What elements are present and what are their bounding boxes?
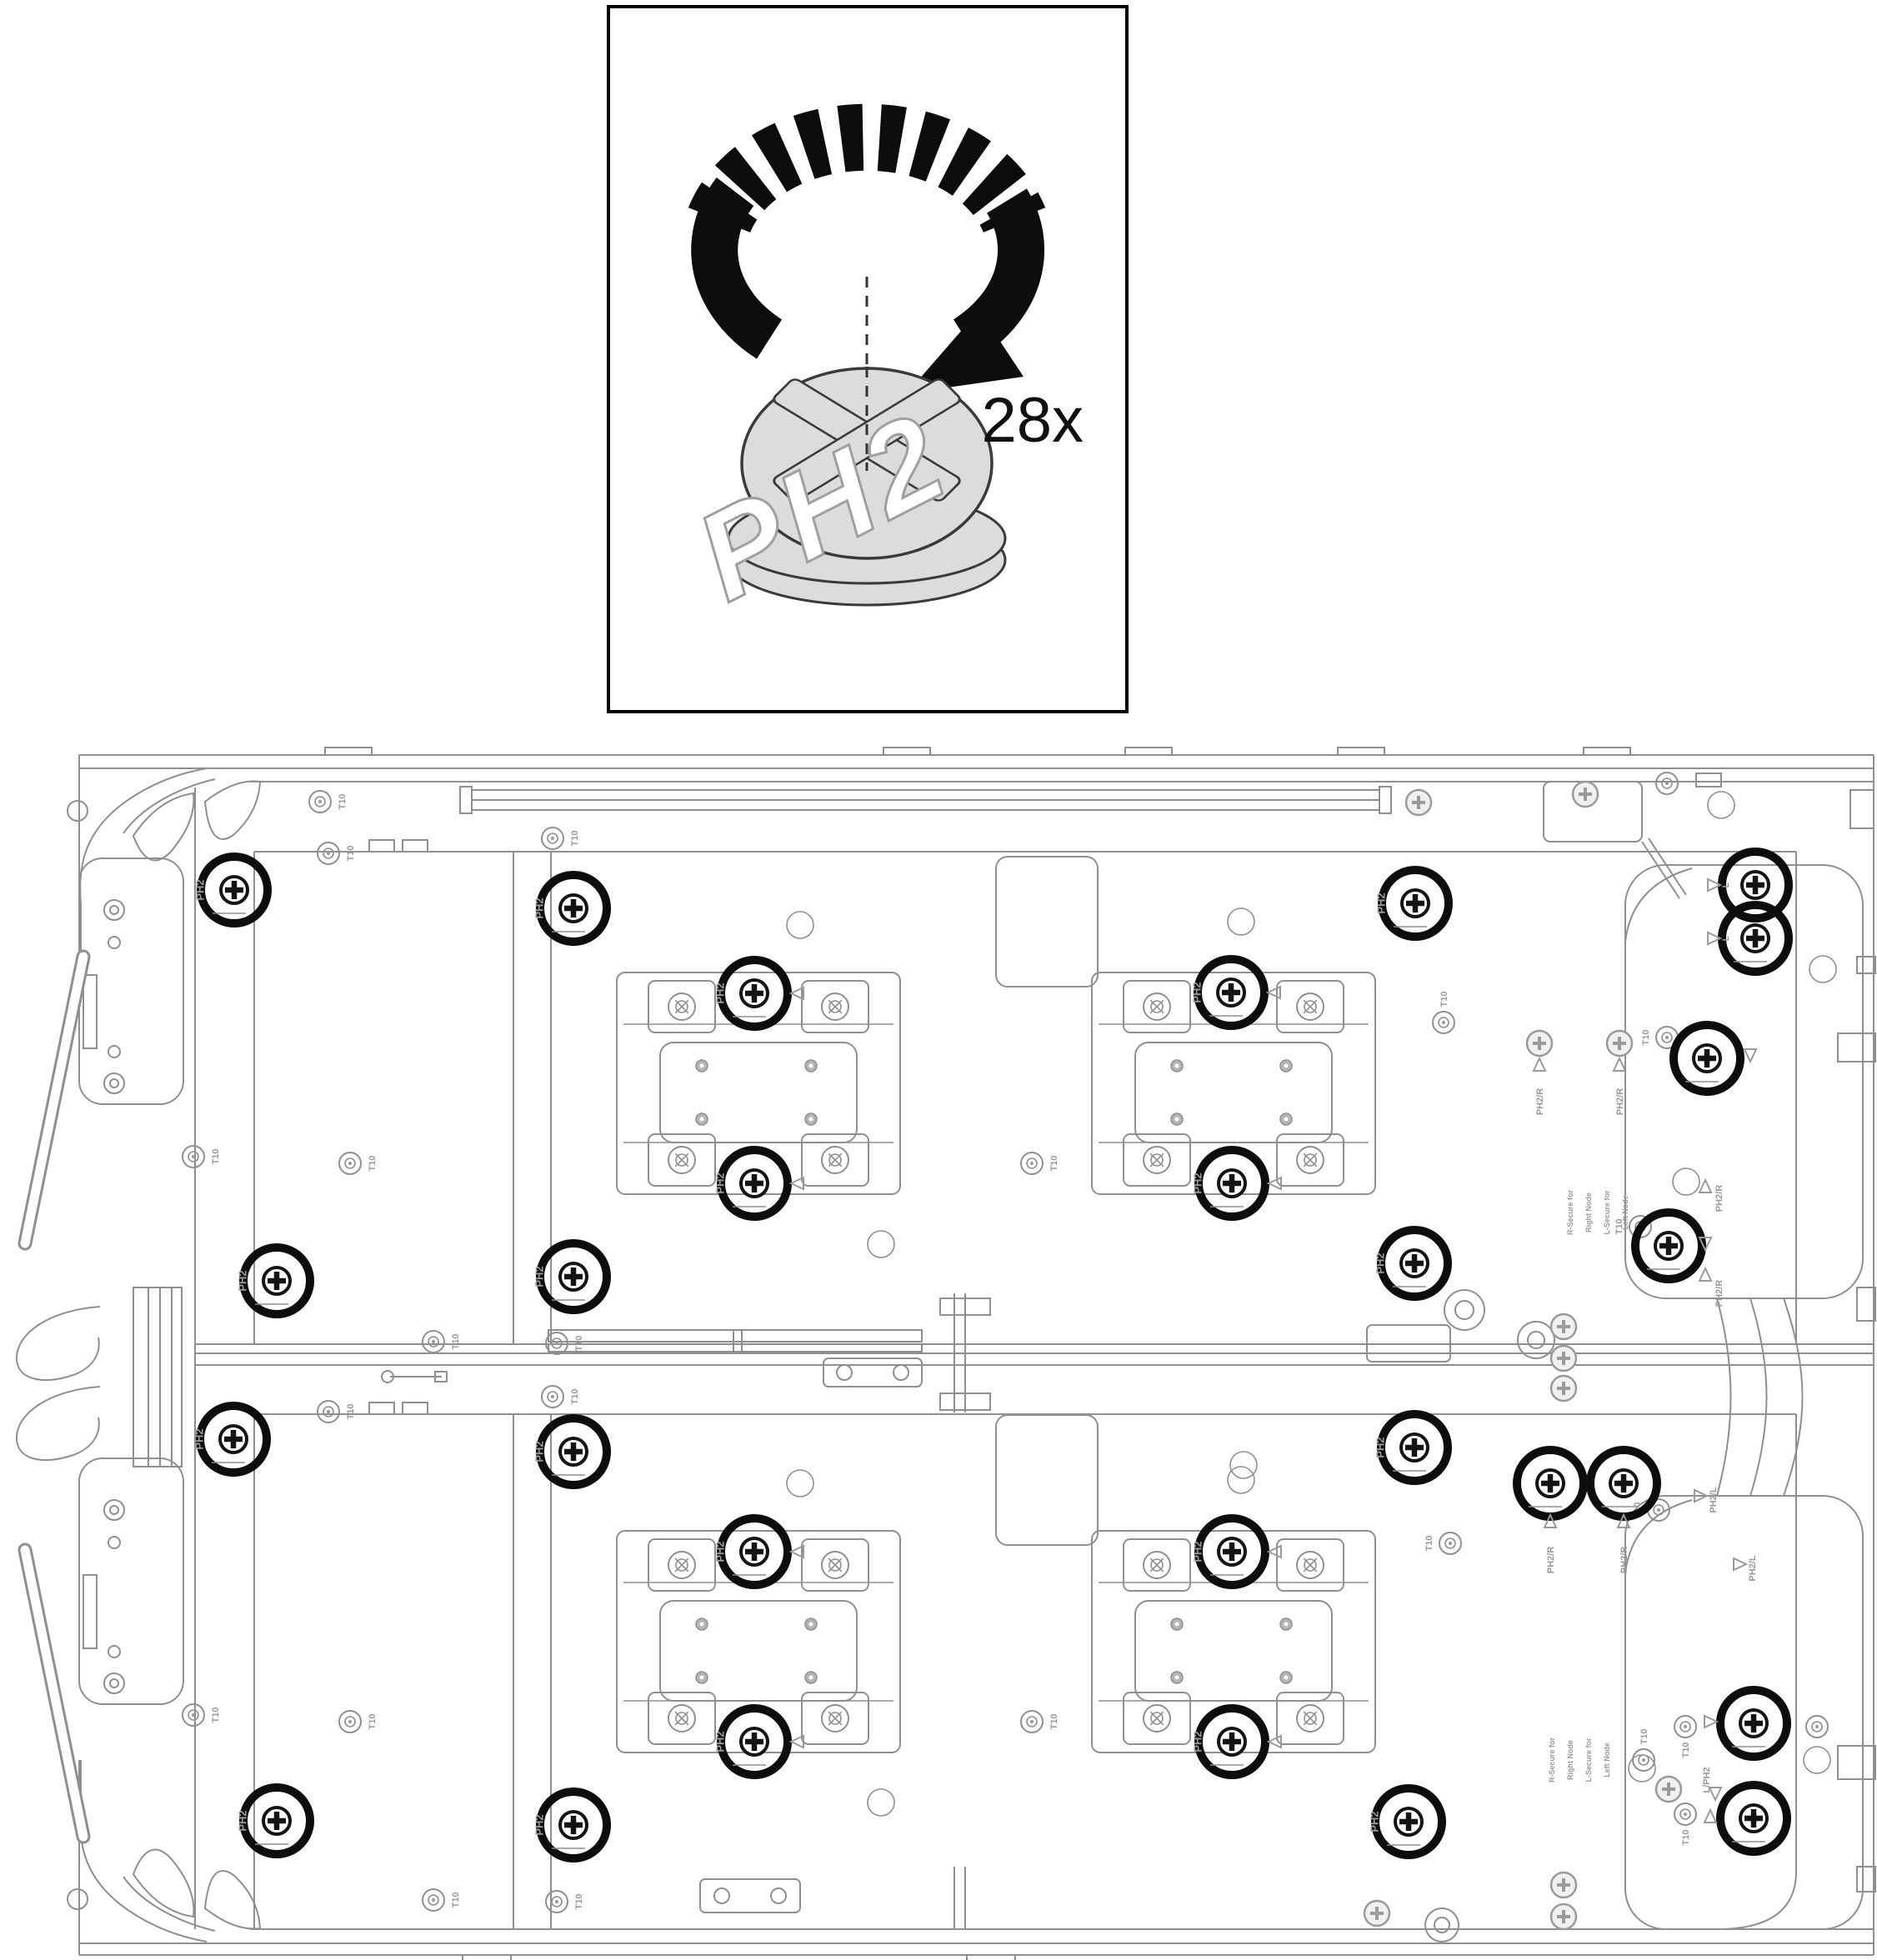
t10-label: T10: [1439, 992, 1449, 1007]
ph2-screw-label: PH2: [1192, 1541, 1204, 1562]
cold-plate: [1135, 1042, 1332, 1142]
annotation-label: L-Secure for: [1584, 1737, 1593, 1782]
hole: [1673, 1168, 1699, 1195]
annotation-label: Right Node: [1566, 1740, 1574, 1780]
ph2-screw-marker: PH2: [237, 1247, 310, 1314]
annotation-label: L: [1721, 935, 1731, 941]
phillips-screw-small: [1406, 790, 1431, 815]
phillips-screw-small: [1573, 782, 1598, 807]
annotation-label: PH2/R: [1619, 1547, 1629, 1573]
t10-label: T10: [1641, 1030, 1651, 1046]
ph2-screw-label: PH2: [193, 1428, 206, 1449]
t10-screw: T10: [309, 791, 348, 812]
annotation-label: PH2/R: [1535, 1088, 1545, 1115]
ph2-screw-label: PH2: [237, 1810, 249, 1831]
pointer-triangle-icon: [1614, 1058, 1625, 1071]
annotation-label: Left Node: [1603, 1742, 1611, 1777]
t10-label: T10: [1424, 1536, 1434, 1552]
screwdriver-inset: 28x PH2: [608, 7, 1127, 712]
ph2-screw-marker: PH2: [1191, 959, 1264, 1026]
t10-label: T10: [574, 1894, 584, 1910]
ph2-screw-marker: PH2: [1192, 1708, 1265, 1775]
ph2-screw-marker: PH2: [533, 875, 607, 942]
latch-lower-left: [68, 1760, 260, 1942]
t10-screw: T10: [1424, 1532, 1461, 1554]
pointer-triangle-icon: [1699, 1180, 1711, 1192]
ph2-screw-marker: [1517, 1450, 1584, 1517]
t10-screw: T10: [1021, 1711, 1059, 1732]
t10-label: T10: [346, 1404, 356, 1420]
t10-label: T10: [1049, 1714, 1059, 1730]
ph2-screw-label: PH2: [533, 1814, 546, 1835]
phillips-screw-small: [1656, 1777, 1681, 1802]
top-right-bracket: [1544, 773, 1721, 898]
hole: [868, 1789, 894, 1816]
ph2-screw-marker: PH2: [1192, 1518, 1265, 1585]
ph2-screw-label: PH2: [237, 1270, 249, 1291]
pointer-triangle-icon: [1704, 1716, 1717, 1727]
phillips-screw-small: [1551, 1904, 1576, 1929]
ph2-screw-label: PH2: [714, 1541, 727, 1562]
t10-label: T10: [338, 794, 348, 810]
phillips-screw-small: [1551, 1346, 1576, 1371]
hole: [1708, 792, 1734, 818]
ph2-screw-marker: [1720, 1690, 1787, 1757]
ph2-screw-label: PH2: [1369, 1811, 1381, 1832]
ph2-screw-marker: [1635, 1212, 1702, 1279]
annotation-label: Left Node: [1621, 1195, 1629, 1230]
t10-screw: T10: [183, 1704, 221, 1726]
ph2-screw-marker: PH2: [714, 1518, 788, 1585]
ph2-screw-label: PH2: [1192, 1172, 1204, 1193]
t10-label: T10: [211, 1707, 221, 1723]
pointer-triangle-icon: [1699, 1268, 1711, 1281]
t10-label: T10: [1049, 1156, 1059, 1172]
ph2-screw-marker: PH2: [1369, 1788, 1442, 1855]
annotation-label: L-Secure for: [1603, 1190, 1611, 1235]
hole: [1804, 1747, 1830, 1773]
ph2-screw-marker: PH2: [714, 1150, 788, 1217]
ph2-screw-label: PH2: [1374, 1252, 1387, 1273]
t10-label: T10: [346, 846, 356, 862]
phillips-screw-small: [1607, 1031, 1632, 1056]
annotation-label: L: [1721, 882, 1731, 887]
hole: [787, 912, 813, 938]
phillips-screw-small: [1551, 1376, 1576, 1401]
hole: [1228, 908, 1254, 935]
ph2-screw-label: PH2: [533, 897, 546, 918]
chassis-hooks-left: [17, 1287, 182, 1467]
t10-label: T10: [1681, 1830, 1691, 1846]
documentation-page: 28x PH2: [0, 0, 1877, 1960]
screw-count-label: 28x: [981, 385, 1084, 456]
t10-label: T10: [574, 1336, 584, 1352]
left-bracket-upper: [79, 858, 183, 1104]
phillips-screw-small: [1527, 1031, 1552, 1056]
phillips-screw-small: [1364, 1901, 1389, 1926]
ph2-screw-marker: PH2: [533, 1418, 607, 1485]
ph2-screw-marker: PH2: [237, 1787, 310, 1854]
t10-label: T10: [368, 1156, 378, 1172]
hole: [1809, 956, 1836, 982]
hole: [868, 1231, 894, 1257]
pointer-triangle-icon: [1734, 1558, 1746, 1570]
t10-screw: T10: [183, 1146, 221, 1167]
ph2-screw-label: PH2: [533, 1266, 546, 1287]
cold-plate: [1135, 1601, 1332, 1701]
pointer-triangle-icon: [791, 1736, 803, 1747]
cold-plate: [660, 1601, 857, 1701]
t10-label: T10: [570, 831, 580, 847]
ph2-screw-marker: PH2: [714, 1708, 788, 1775]
annotation-label: PH2/R: [1615, 1088, 1625, 1115]
ph2-screw-marker: PH2: [194, 857, 268, 923]
phillips-screw-small: [1551, 1314, 1576, 1339]
ph2-screw-marker: PH2: [1374, 1414, 1448, 1481]
t10-label: T10: [1681, 1742, 1691, 1758]
ph2-screw-label: PH2: [1375, 892, 1388, 913]
t10-screw: T10: [339, 1152, 378, 1174]
annotation-label: PH2/R: [1546, 1547, 1556, 1573]
t10-screw: T10: [1021, 1152, 1059, 1174]
t10-screw: T10: [423, 1331, 461, 1352]
phillips-screw-small: [1551, 1872, 1576, 1897]
ph2-screw-marker: PH2: [1374, 1230, 1448, 1297]
ph2-screw-label: PH2: [714, 982, 727, 1003]
release-lever-lower: [25, 1550, 83, 1837]
hole: [1230, 1452, 1257, 1478]
ph2-screw-marker: [1590, 1450, 1657, 1517]
annotation-label: PH2/L: [1748, 1555, 1758, 1581]
annotation-label: PH2/R: [1714, 1280, 1724, 1307]
t10-screw: T10: [542, 1386, 580, 1407]
pointer-triangle-icon: [1269, 1546, 1281, 1557]
ph2-screw-marker: PH2: [533, 1243, 607, 1310]
t10-label: T10: [1639, 1729, 1649, 1745]
annotation-label: Right Node: [1584, 1192, 1593, 1232]
t10-screw: T10: [318, 1401, 356, 1422]
ph2-screw-marker: PH2: [533, 1792, 607, 1858]
water-hoses: [1717, 1298, 1803, 1496]
cold-plate: [660, 1042, 857, 1142]
annotation-label: R-Secure for: [1548, 1737, 1556, 1782]
ph2-screw-label: PH2: [1191, 982, 1204, 1002]
annotation-label: PH2/L: [1709, 1487, 1719, 1512]
pointer-triangle-icon: [791, 1177, 803, 1189]
bottom-center-assembly: [700, 1867, 1459, 1942]
t10-screw: T10: [318, 842, 356, 864]
t10-screw: [1806, 1716, 1828, 1737]
ph2-screw-marker: PH2: [193, 1406, 267, 1472]
t10-label: T10: [451, 1334, 461, 1350]
pointer-triangle-icon: [1534, 1058, 1545, 1071]
ph2-screw-label: PH2: [194, 879, 207, 900]
hole: [787, 1470, 813, 1497]
t10-screw: T10: [423, 1889, 461, 1911]
t10-label: T10: [211, 1149, 221, 1165]
annotation-label: PH2/R: [1714, 1185, 1724, 1212]
ph2-screw-label: PH2: [714, 1731, 727, 1752]
ph2-screw-label: PH2: [533, 1441, 546, 1462]
ph2-screw-label: PH2: [714, 1172, 727, 1193]
tray-structure: [17, 747, 1875, 1960]
water-loop-screw-diagram: 28x PH2: [0, 0, 1877, 1960]
pointer-triangle-icon: [1268, 987, 1280, 998]
t10-screw: T10: [1674, 1803, 1696, 1845]
t10-screw: T10: [1674, 1716, 1696, 1757]
t10-screw: [1656, 772, 1678, 794]
t10-screw: T10: [1433, 992, 1454, 1033]
pointer-triangle-icon: [1744, 1049, 1756, 1062]
release-lever-upper: [25, 957, 83, 1243]
ph2-screw-label: PH2: [1374, 1437, 1387, 1457]
ph2-screw-marker: [1674, 1025, 1740, 1092]
ph2-screw-marker: PH2: [1375, 870, 1449, 937]
pointer-triangle-icon: [1704, 1810, 1716, 1822]
ph2-screw-label: PH2: [1192, 1731, 1204, 1752]
ph2-screw-marker: PH2: [714, 960, 788, 1027]
ph2-screw-marker: PH2: [1192, 1150, 1265, 1217]
annotation-label: R-Secure for: [1566, 1189, 1574, 1235]
t10-label: T10: [570, 1389, 580, 1405]
t10-screw: T10: [542, 827, 580, 849]
t10-screw: T10: [339, 1711, 378, 1732]
left-bracket-lower: [79, 1458, 183, 1704]
ph2-screw-marker: [1720, 1785, 1787, 1852]
t10-label: T10: [451, 1892, 461, 1908]
t10-label: T10: [368, 1714, 378, 1730]
t10-screw: T10: [1633, 1729, 1654, 1771]
